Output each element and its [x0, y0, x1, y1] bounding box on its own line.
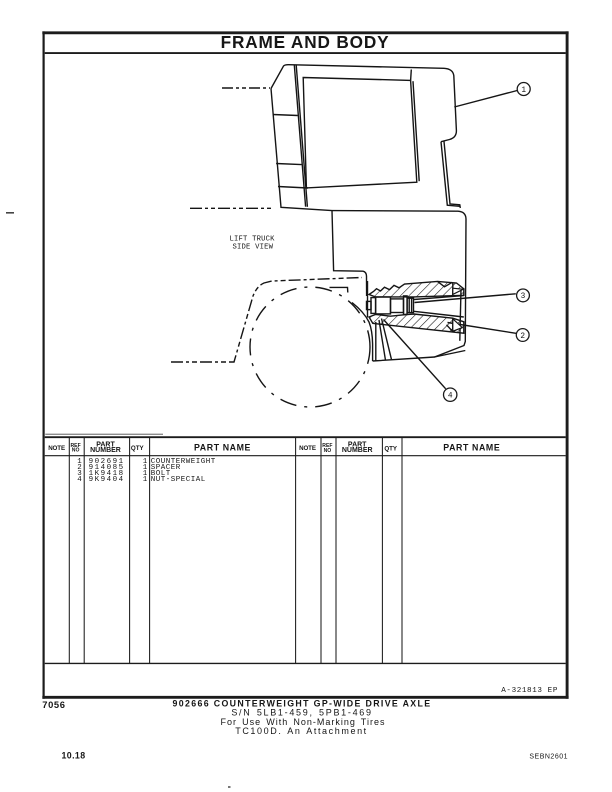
- svg-text:FRAME AND BODY: FRAME AND BODY: [221, 32, 390, 52]
- svg-text:NO: NO: [324, 448, 332, 454]
- svg-text:TC100D. An Attachment: TC100D. An Attachment: [235, 726, 368, 736]
- svg-text:7056: 7056: [42, 699, 65, 710]
- svg-text:NO: NO: [72, 448, 80, 454]
- svg-text:SIDE VIEW: SIDE VIEW: [233, 244, 274, 252]
- svg-text:LIFT TRUCK: LIFT TRUCK: [230, 236, 276, 244]
- svg-text:4: 4: [77, 476, 82, 484]
- svg-text:NUT-SPECIAL: NUT-SPECIAL: [151, 476, 206, 484]
- svg-text:4: 4: [448, 393, 453, 401]
- svg-text:2: 2: [520, 333, 525, 341]
- svg-text:SEBN2601: SEBN2601: [529, 753, 568, 760]
- svg-text:NOTE: NOTE: [48, 445, 65, 452]
- svg-text:PART NAME: PART NAME: [194, 442, 251, 452]
- svg-text:10.18: 10.18: [62, 750, 86, 760]
- svg-text:A-321813 EP: A-321813 EP: [501, 687, 558, 695]
- svg-text:NUMBER: NUMBER: [90, 447, 121, 454]
- svg-text:NOTE: NOTE: [299, 445, 316, 452]
- svg-text:3: 3: [521, 293, 526, 301]
- svg-text:1: 1: [521, 87, 526, 95]
- svg-text:PART NAME: PART NAME: [443, 442, 500, 452]
- svg-text:QTY: QTY: [131, 445, 145, 452]
- svg-text:1: 1: [143, 476, 148, 484]
- svg-text:NUMBER: NUMBER: [342, 447, 373, 454]
- svg-text:QTY: QTY: [384, 445, 398, 452]
- svg-text:9K9404: 9K9404: [89, 476, 125, 484]
